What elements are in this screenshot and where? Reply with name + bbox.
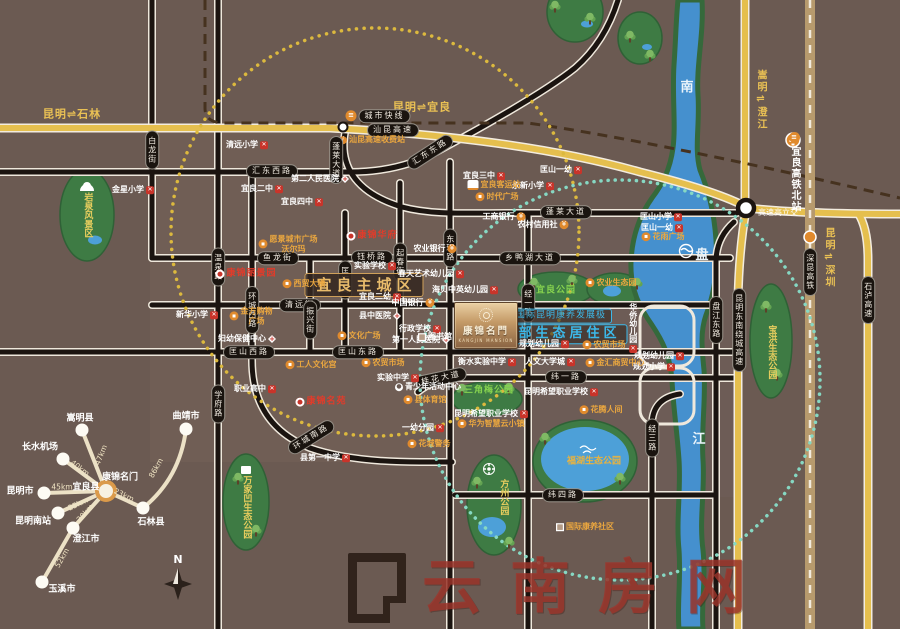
interchange-ring xyxy=(738,200,754,216)
compass-n-label: N xyxy=(173,553,182,566)
city-node xyxy=(67,522,80,535)
watermark-text: 云南房网 xyxy=(422,558,774,618)
city-node xyxy=(137,502,150,515)
city-node xyxy=(180,423,193,436)
project-node xyxy=(97,482,115,500)
park-baohong xyxy=(750,284,792,398)
express-station-dot xyxy=(339,123,348,132)
project-logo: 康锦名門 KANGJIN MANSION xyxy=(454,302,518,349)
hsr-station-icon xyxy=(786,133,800,147)
compass: N xyxy=(164,553,192,600)
map-canvas: N xyxy=(0,0,900,629)
city-node xyxy=(52,507,65,520)
project-title: 康锦名門 xyxy=(463,323,509,337)
city-node xyxy=(76,424,89,437)
project-medallion-icon xyxy=(479,308,493,322)
watermark-logo-icon xyxy=(348,553,406,623)
distance-line xyxy=(42,528,73,582)
project-subtitle: KANGJIN MANSION xyxy=(458,338,513,343)
city-node xyxy=(38,487,51,500)
river-nanpanjiang xyxy=(631,0,717,629)
location-map: N 昆明⇌石林昆明⇌宜良嵩明⇌澄江昆明⇌深圳汕昆高速≡城市快线i汕昆高速收费站汇… xyxy=(0,0,900,629)
watermark: 云南房网 xyxy=(348,553,774,623)
hsr-line-icon xyxy=(804,231,816,243)
park-building-icon xyxy=(241,466,251,474)
flower-icon xyxy=(484,464,495,475)
city-node xyxy=(57,453,70,466)
lake-fuhu xyxy=(541,427,629,491)
city-node xyxy=(36,576,49,589)
